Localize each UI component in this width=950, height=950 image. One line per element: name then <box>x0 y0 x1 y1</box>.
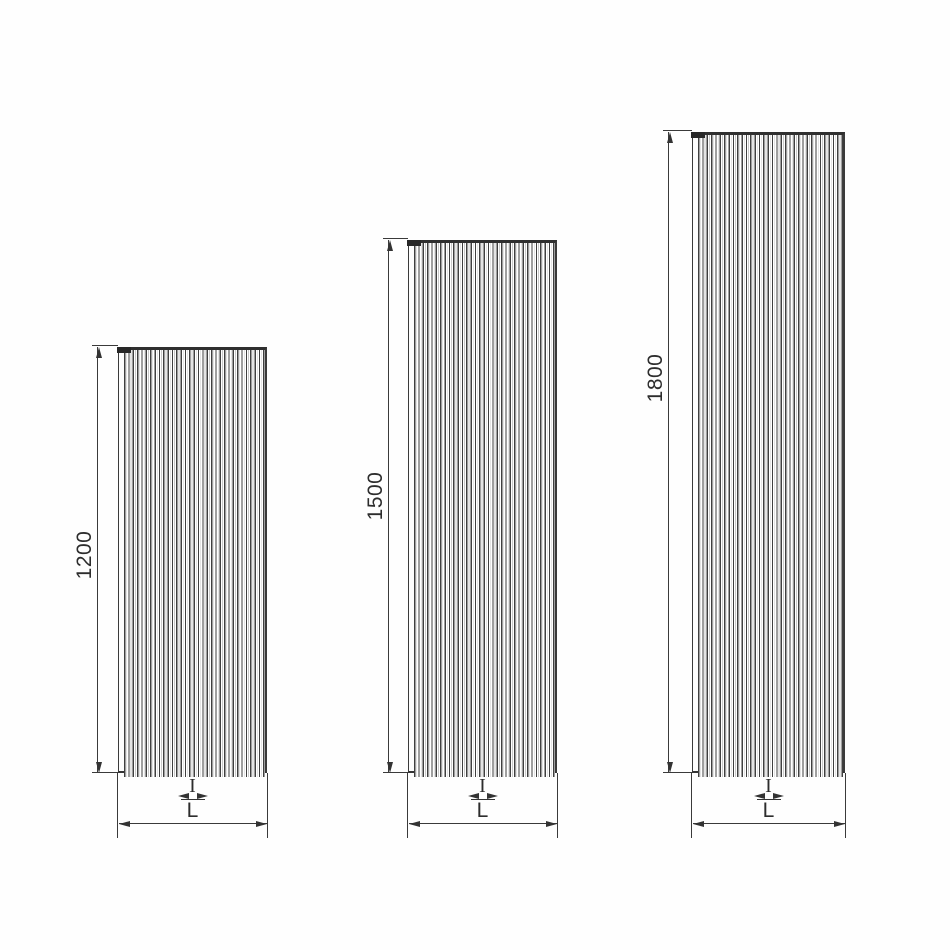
arrow-up-icon <box>387 240 393 251</box>
arrow-up-icon <box>667 132 673 143</box>
arrow-left-icon <box>409 821 420 827</box>
arrow-down-icon <box>96 762 102 773</box>
spacing-dimension-label: I <box>479 777 486 795</box>
width-dimension-label: L <box>692 799 845 823</box>
fins-pattern <box>124 350 265 777</box>
arrow-left-icon <box>754 793 765 799</box>
height-extension-line-top <box>383 238 408 239</box>
height-dimension-line <box>388 240 389 773</box>
fins-pattern <box>414 243 555 777</box>
arrow-left-icon <box>693 821 704 827</box>
spacing-dimension-label: I <box>189 777 196 795</box>
arrow-right-icon <box>773 793 784 799</box>
arrow-right-icon <box>197 793 208 799</box>
arrow-down-icon <box>387 762 393 773</box>
width-dimension-line <box>409 823 557 824</box>
arrow-left-icon <box>468 793 479 799</box>
width-dimension-line <box>693 823 845 824</box>
arrow-right-icon <box>256 821 267 827</box>
height-dimension-label: 1200 <box>74 515 96 595</box>
corner-mark <box>691 132 705 138</box>
width-dimension-line <box>119 823 267 824</box>
arrow-down-icon <box>667 762 673 773</box>
arrow-right-icon <box>487 793 498 799</box>
radiator-panel <box>408 240 557 773</box>
fins-pattern <box>698 135 843 777</box>
width-dimension-label: L <box>408 799 557 823</box>
corner-mark <box>117 347 131 353</box>
spacing-dimension-label: I <box>765 777 772 795</box>
radiator-panel-group-1200: 1200 I L <box>118 347 267 773</box>
height-extension-line-top <box>92 345 118 346</box>
height-extension-line-top <box>663 130 692 131</box>
arrow-right-icon <box>546 821 557 827</box>
arrow-right-icon <box>834 821 845 827</box>
arrow-up-icon <box>96 347 102 358</box>
radiator-panel <box>692 132 845 773</box>
diagram-canvas: 1200 I L 1500 <box>0 0 950 950</box>
radiator-panel-group-1500: 1500 I L <box>408 240 557 773</box>
corner-mark <box>407 240 421 246</box>
height-dimension-label: 1800 <box>645 338 667 418</box>
arrow-left-icon <box>119 821 130 827</box>
height-dimension-line <box>97 347 98 773</box>
radiator-panel-group-1800: 1800 I L <box>692 132 845 773</box>
height-dimension-line <box>668 132 669 773</box>
radiator-panel <box>118 347 267 773</box>
width-dimension-label: L <box>118 799 267 823</box>
arrow-left-icon <box>178 793 189 799</box>
height-dimension-label: 1500 <box>365 456 387 536</box>
